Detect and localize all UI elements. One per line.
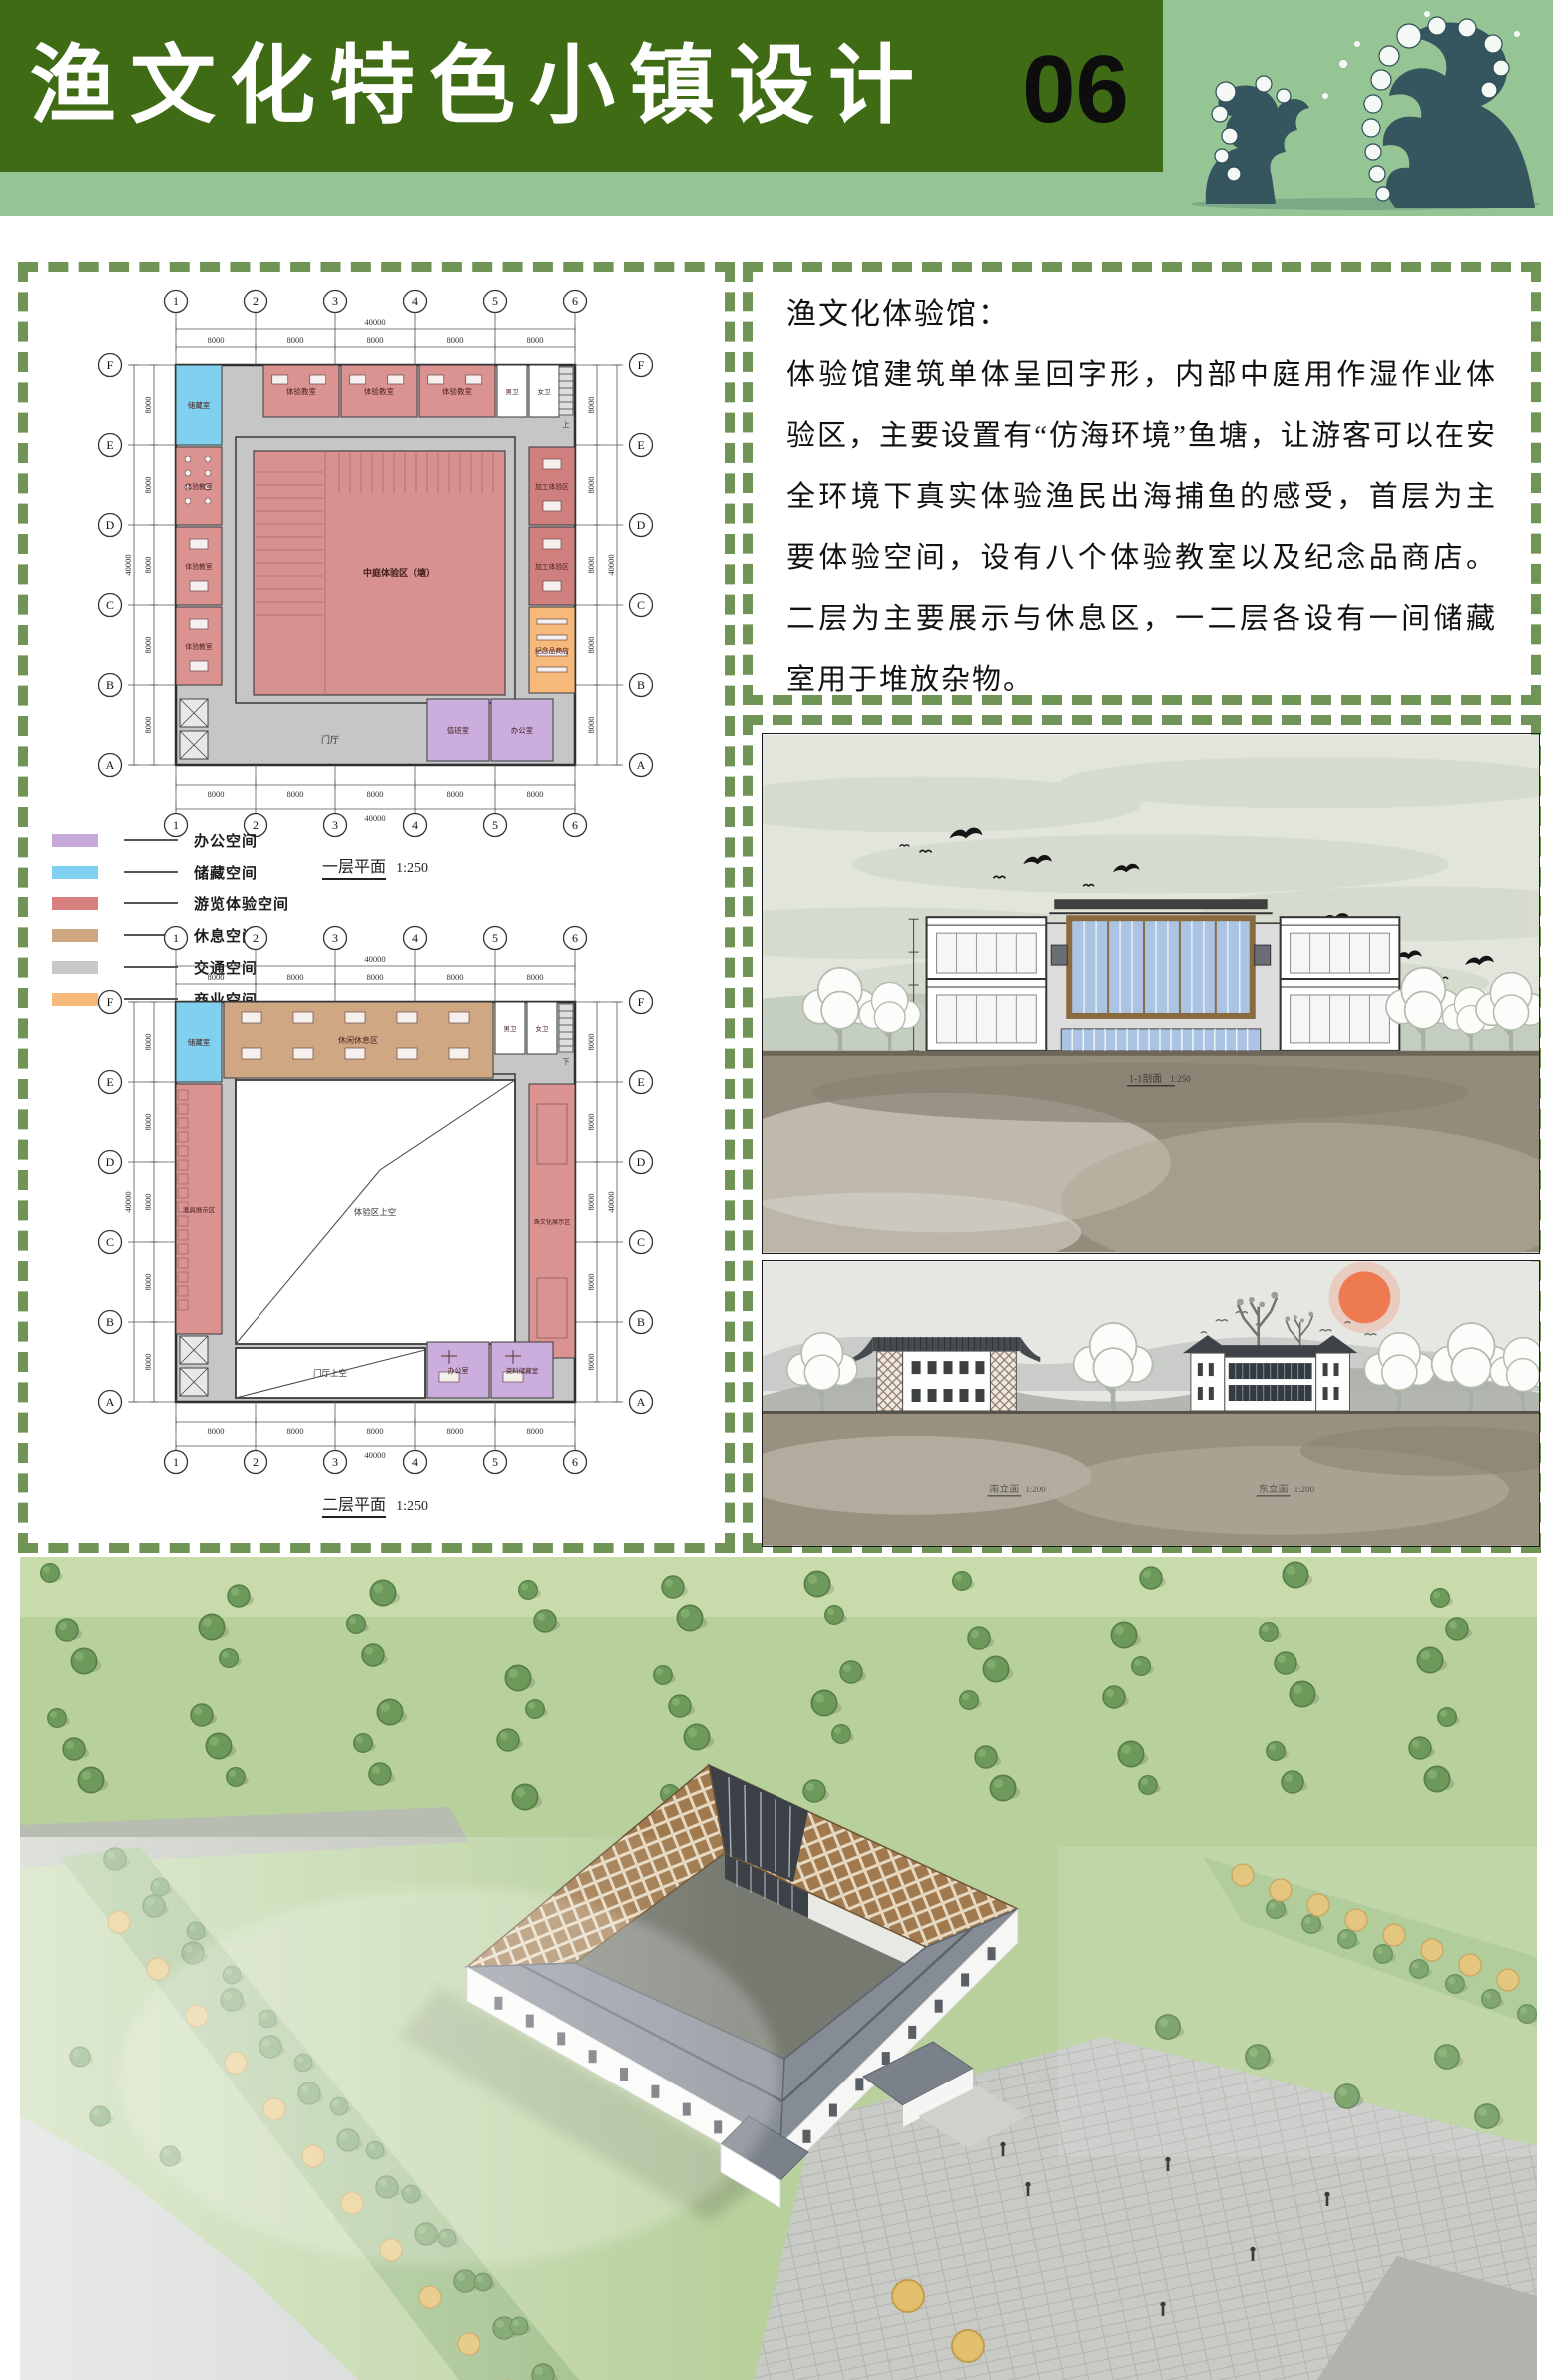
svg-text:8000: 8000 [586, 1114, 596, 1131]
svg-text:中庭体验区（塘）: 中庭体验区（塘） [363, 567, 435, 578]
aerial-rendering [20, 1557, 1537, 2380]
svg-text:A: A [106, 1395, 115, 1409]
svg-text:8000: 8000 [143, 1354, 153, 1371]
legend-swatch [52, 834, 98, 847]
svg-text:1: 1 [173, 931, 179, 945]
room: 储藏室 [176, 365, 222, 445]
room-label: 渔文化展示区 [533, 1218, 570, 1226]
svg-text:2: 2 [253, 295, 259, 308]
svg-text:D: D [106, 518, 115, 532]
room: 体验教室 [263, 365, 339, 417]
page-number: 06 [988, 0, 1163, 172]
svg-text:40000: 40000 [364, 1450, 385, 1460]
svg-text:40000: 40000 [364, 954, 385, 964]
svg-text:D: D [106, 1155, 115, 1169]
room: 休闲休息区 [224, 1002, 493, 1078]
legend-swatch [52, 897, 98, 910]
svg-text:8000: 8000 [287, 972, 304, 982]
room-label: 体验教室 [364, 386, 394, 396]
room: 资料储藏室 [491, 1342, 553, 1398]
caption-scale: 1:250 [396, 1499, 428, 1514]
floor-plans-panel: 112233445566FFEEDDCCBBAA4000080008000800… [18, 262, 735, 1553]
room-label: 储藏室 [188, 400, 211, 410]
svg-text:B: B [637, 1315, 645, 1329]
room-label: 体验教室 [185, 482, 212, 491]
svg-text:8000: 8000 [586, 637, 596, 654]
legend-item: 办公空间 [52, 827, 351, 853]
yellow-tree-icon [892, 2280, 924, 2312]
elevation-rendering: 南立面1:200 东立面1:200 [762, 1260, 1540, 1547]
room-label: 女卫 [536, 1024, 550, 1033]
right-elevation-building [1183, 1335, 1358, 1411]
description-body: 体验馆建筑单体呈回字形，内部中庭用作湿作业体验区，主要设置有“仿海环境”鱼塘，让… [786, 345, 1497, 711]
svg-text:8000: 8000 [586, 717, 596, 734]
room: 加工体验区 [529, 447, 575, 525]
svg-text:8000: 8000 [143, 477, 153, 494]
room-label: 储藏室 [188, 1037, 211, 1047]
svg-text:40000: 40000 [123, 554, 133, 575]
legend-line [124, 839, 178, 841]
svg-text:8000: 8000 [527, 335, 544, 345]
legend-line [124, 871, 178, 873]
svg-text:F: F [107, 358, 114, 372]
svg-text:8000: 8000 [208, 335, 225, 345]
second-floor-caption: 二层平面1:250 [46, 1491, 705, 1515]
room: 体验教室 [419, 365, 495, 417]
legend-label: 储藏空间 [194, 862, 258, 883]
haze-right [1058, 1847, 1537, 2156]
svg-text:6: 6 [572, 1455, 578, 1469]
caption-scale: 1:250 [396, 861, 428, 876]
room-label: 体验教室 [185, 642, 212, 651]
room-label: 资料储藏室 [506, 1366, 539, 1375]
svg-text:8000: 8000 [447, 789, 464, 799]
room: 女卫 [527, 1002, 557, 1054]
svg-text:6: 6 [572, 295, 578, 308]
grass-light [20, 1557, 1537, 1617]
room-label: 女卫 [538, 387, 552, 396]
svg-text:2: 2 [253, 931, 259, 945]
room: 渔具展示区 [176, 1084, 222, 1334]
first-floor-plan: 112233445566FFEEDDCCBBAA4000080008000800… [46, 274, 705, 853]
svg-text:8000: 8000 [447, 1426, 464, 1436]
room-label: 办公室 [448, 1366, 469, 1375]
svg-text:C: C [106, 598, 114, 612]
legend-line [124, 902, 178, 904]
svg-text:8000: 8000 [447, 972, 464, 982]
room: 渔文化展示区 [529, 1084, 575, 1358]
svg-text:5: 5 [492, 818, 498, 832]
yellow-tree-icon [952, 2330, 984, 2362]
room-label: 男卫 [506, 388, 520, 396]
svg-text:F: F [638, 995, 645, 1009]
legend-swatch [52, 866, 98, 879]
svg-text:40000: 40000 [606, 554, 616, 575]
header-band: 渔文化特色小镇设计 06 [0, 0, 1163, 172]
svg-text:8000: 8000 [527, 972, 544, 982]
svg-text:D: D [637, 518, 646, 532]
room: 办公室 [491, 699, 553, 761]
room-label: 体验教室 [286, 386, 316, 396]
room-label: 休闲休息区 [338, 1035, 378, 1045]
svg-text:8000: 8000 [143, 1114, 153, 1131]
room-label: 加工体验区 [535, 562, 569, 571]
svg-text:8000: 8000 [143, 1034, 153, 1051]
svg-text:8000: 8000 [527, 789, 544, 799]
svg-text:上: 上 [563, 420, 570, 429]
svg-text:8000: 8000 [143, 557, 153, 574]
svg-text:8000: 8000 [586, 1034, 596, 1051]
svg-text:8000: 8000 [367, 1426, 384, 1436]
svg-text:下: 下 [563, 1058, 570, 1066]
legend-label: 办公空间 [194, 830, 258, 851]
section-rendering: 1-1剖面1:250 [762, 733, 1540, 1254]
room-label: 体验教室 [185, 562, 212, 571]
svg-text:4: 4 [412, 931, 418, 945]
svg-text:D: D [637, 1155, 646, 1169]
svg-text:8000: 8000 [143, 397, 153, 414]
svg-text:8000: 8000 [287, 1426, 304, 1436]
left-elevation-caption: 南立面1:200 [989, 1483, 1046, 1495]
svg-text:8000: 8000 [143, 1194, 153, 1211]
svg-text:E: E [637, 438, 644, 452]
svg-text:A: A [637, 758, 646, 772]
ground-texture [762, 1411, 1540, 1546]
svg-text:5: 5 [492, 1455, 498, 1469]
room: 体验教室 [176, 607, 222, 685]
room: 体验教室 [176, 527, 222, 605]
svg-text:40000: 40000 [364, 317, 385, 327]
svg-text:门厅上空: 门厅上空 [313, 1368, 347, 1378]
svg-text:E: E [106, 1075, 113, 1089]
svg-text:40000: 40000 [606, 1191, 616, 1212]
wave-icon [1176, 4, 1541, 212]
svg-text:8000: 8000 [208, 972, 225, 982]
svg-text:B: B [106, 1315, 114, 1329]
sun-icon [1339, 1271, 1391, 1323]
svg-text:B: B [637, 678, 645, 692]
svg-text:8000: 8000 [586, 1194, 596, 1211]
room: 储藏室 [176, 1002, 222, 1082]
room-label: 加工体验区 [535, 482, 569, 491]
svg-text:8000: 8000 [367, 789, 384, 799]
svg-text:8000: 8000 [287, 789, 304, 799]
room-label: 值班室 [447, 725, 470, 735]
room: 办公室 [427, 1342, 489, 1398]
second-floor-plan: 112233445566FFEEDDCCBBAA4000080008000800… [46, 910, 705, 1489]
svg-text:3: 3 [332, 295, 338, 308]
plan-drawing: 112233445566FFEEDDCCBBAA4000080008000800… [99, 927, 653, 1474]
section-building [909, 899, 1400, 1051]
room: 体验教室 [341, 365, 417, 417]
svg-text:A: A [106, 758, 115, 772]
svg-text:8000: 8000 [586, 1274, 596, 1291]
haze-cloud [120, 1887, 778, 2266]
svg-text:C: C [637, 1235, 645, 1249]
svg-text:5: 5 [492, 931, 498, 945]
svg-text:8000: 8000 [367, 335, 384, 345]
svg-text:1: 1 [173, 1455, 179, 1469]
svg-text:5: 5 [492, 295, 498, 308]
svg-text:3: 3 [332, 1455, 338, 1469]
svg-text:40000: 40000 [123, 1191, 133, 1212]
room-label: 办公室 [511, 725, 534, 735]
right-elevation-caption: 东立面1:200 [1259, 1483, 1315, 1495]
room-label: 渔具展示区 [183, 1205, 216, 1214]
svg-text:6: 6 [572, 931, 578, 945]
svg-text:门厅: 门厅 [321, 734, 339, 745]
svg-text:8000: 8000 [586, 557, 596, 574]
room: 值班室 [427, 699, 489, 761]
svg-text:F: F [638, 358, 645, 372]
svg-text:E: E [637, 1075, 644, 1089]
svg-text:8000: 8000 [208, 1426, 225, 1436]
room-label: 男卫 [504, 1025, 518, 1033]
section-caption: 1-1剖面1:250 [1129, 1072, 1191, 1085]
room: 体验教室 [176, 447, 222, 525]
svg-text:6: 6 [572, 818, 578, 832]
svg-text:A: A [637, 1395, 646, 1409]
description-heading: 渔文化体验馆： [786, 286, 1497, 345]
svg-text:4: 4 [412, 295, 418, 308]
room-label: 纪念品商店 [535, 646, 569, 655]
svg-text:2: 2 [253, 1455, 259, 1469]
plan-drawing: 112233445566FFEEDDCCBBAA4000080008000800… [99, 291, 653, 837]
page-title: 渔文化特色小镇设计 [30, 6, 948, 166]
svg-text:8000: 8000 [287, 335, 304, 345]
svg-text:40000: 40000 [364, 813, 385, 823]
svg-text:8000: 8000 [586, 1354, 596, 1371]
room: 女卫 [529, 365, 559, 417]
elevations-panel: 1-1剖面1:250 [743, 715, 1541, 1553]
svg-text:1: 1 [173, 295, 179, 308]
room: 纪念品商店 [529, 607, 575, 693]
svg-text:8000: 8000 [447, 335, 464, 345]
svg-text:E: E [106, 438, 113, 452]
svg-text:C: C [637, 598, 645, 612]
svg-text:8000: 8000 [367, 972, 384, 982]
svg-text:8000: 8000 [586, 397, 596, 414]
svg-text:8000: 8000 [143, 1274, 153, 1291]
svg-text:8000: 8000 [527, 1426, 544, 1436]
svg-text:8000: 8000 [586, 477, 596, 494]
caption-text: 二层平面 [322, 1497, 386, 1518]
description-panel: 渔文化体验馆： 体验馆建筑单体呈回字形，内部中庭用作湿作业体验区，主要设置有“仿… [743, 262, 1541, 705]
svg-text:8000: 8000 [143, 637, 153, 654]
svg-text:8000: 8000 [208, 789, 225, 799]
svg-text:体验区上空: 体验区上空 [354, 1207, 397, 1217]
room-label: 体验教室 [442, 386, 472, 396]
svg-text:3: 3 [332, 931, 338, 945]
room: 男卫 [497, 365, 527, 417]
room: 加工体验区 [529, 527, 575, 605]
svg-text:B: B [106, 678, 114, 692]
svg-text:4: 4 [412, 818, 418, 832]
legend-item: 储藏空间 [52, 859, 351, 885]
svg-text:8000: 8000 [143, 717, 153, 734]
left-elevation-building [853, 1337, 1041, 1411]
svg-text:F: F [107, 995, 114, 1009]
room: 男卫 [495, 1002, 525, 1054]
svg-text:C: C [106, 1235, 114, 1249]
svg-text:4: 4 [412, 1455, 418, 1469]
